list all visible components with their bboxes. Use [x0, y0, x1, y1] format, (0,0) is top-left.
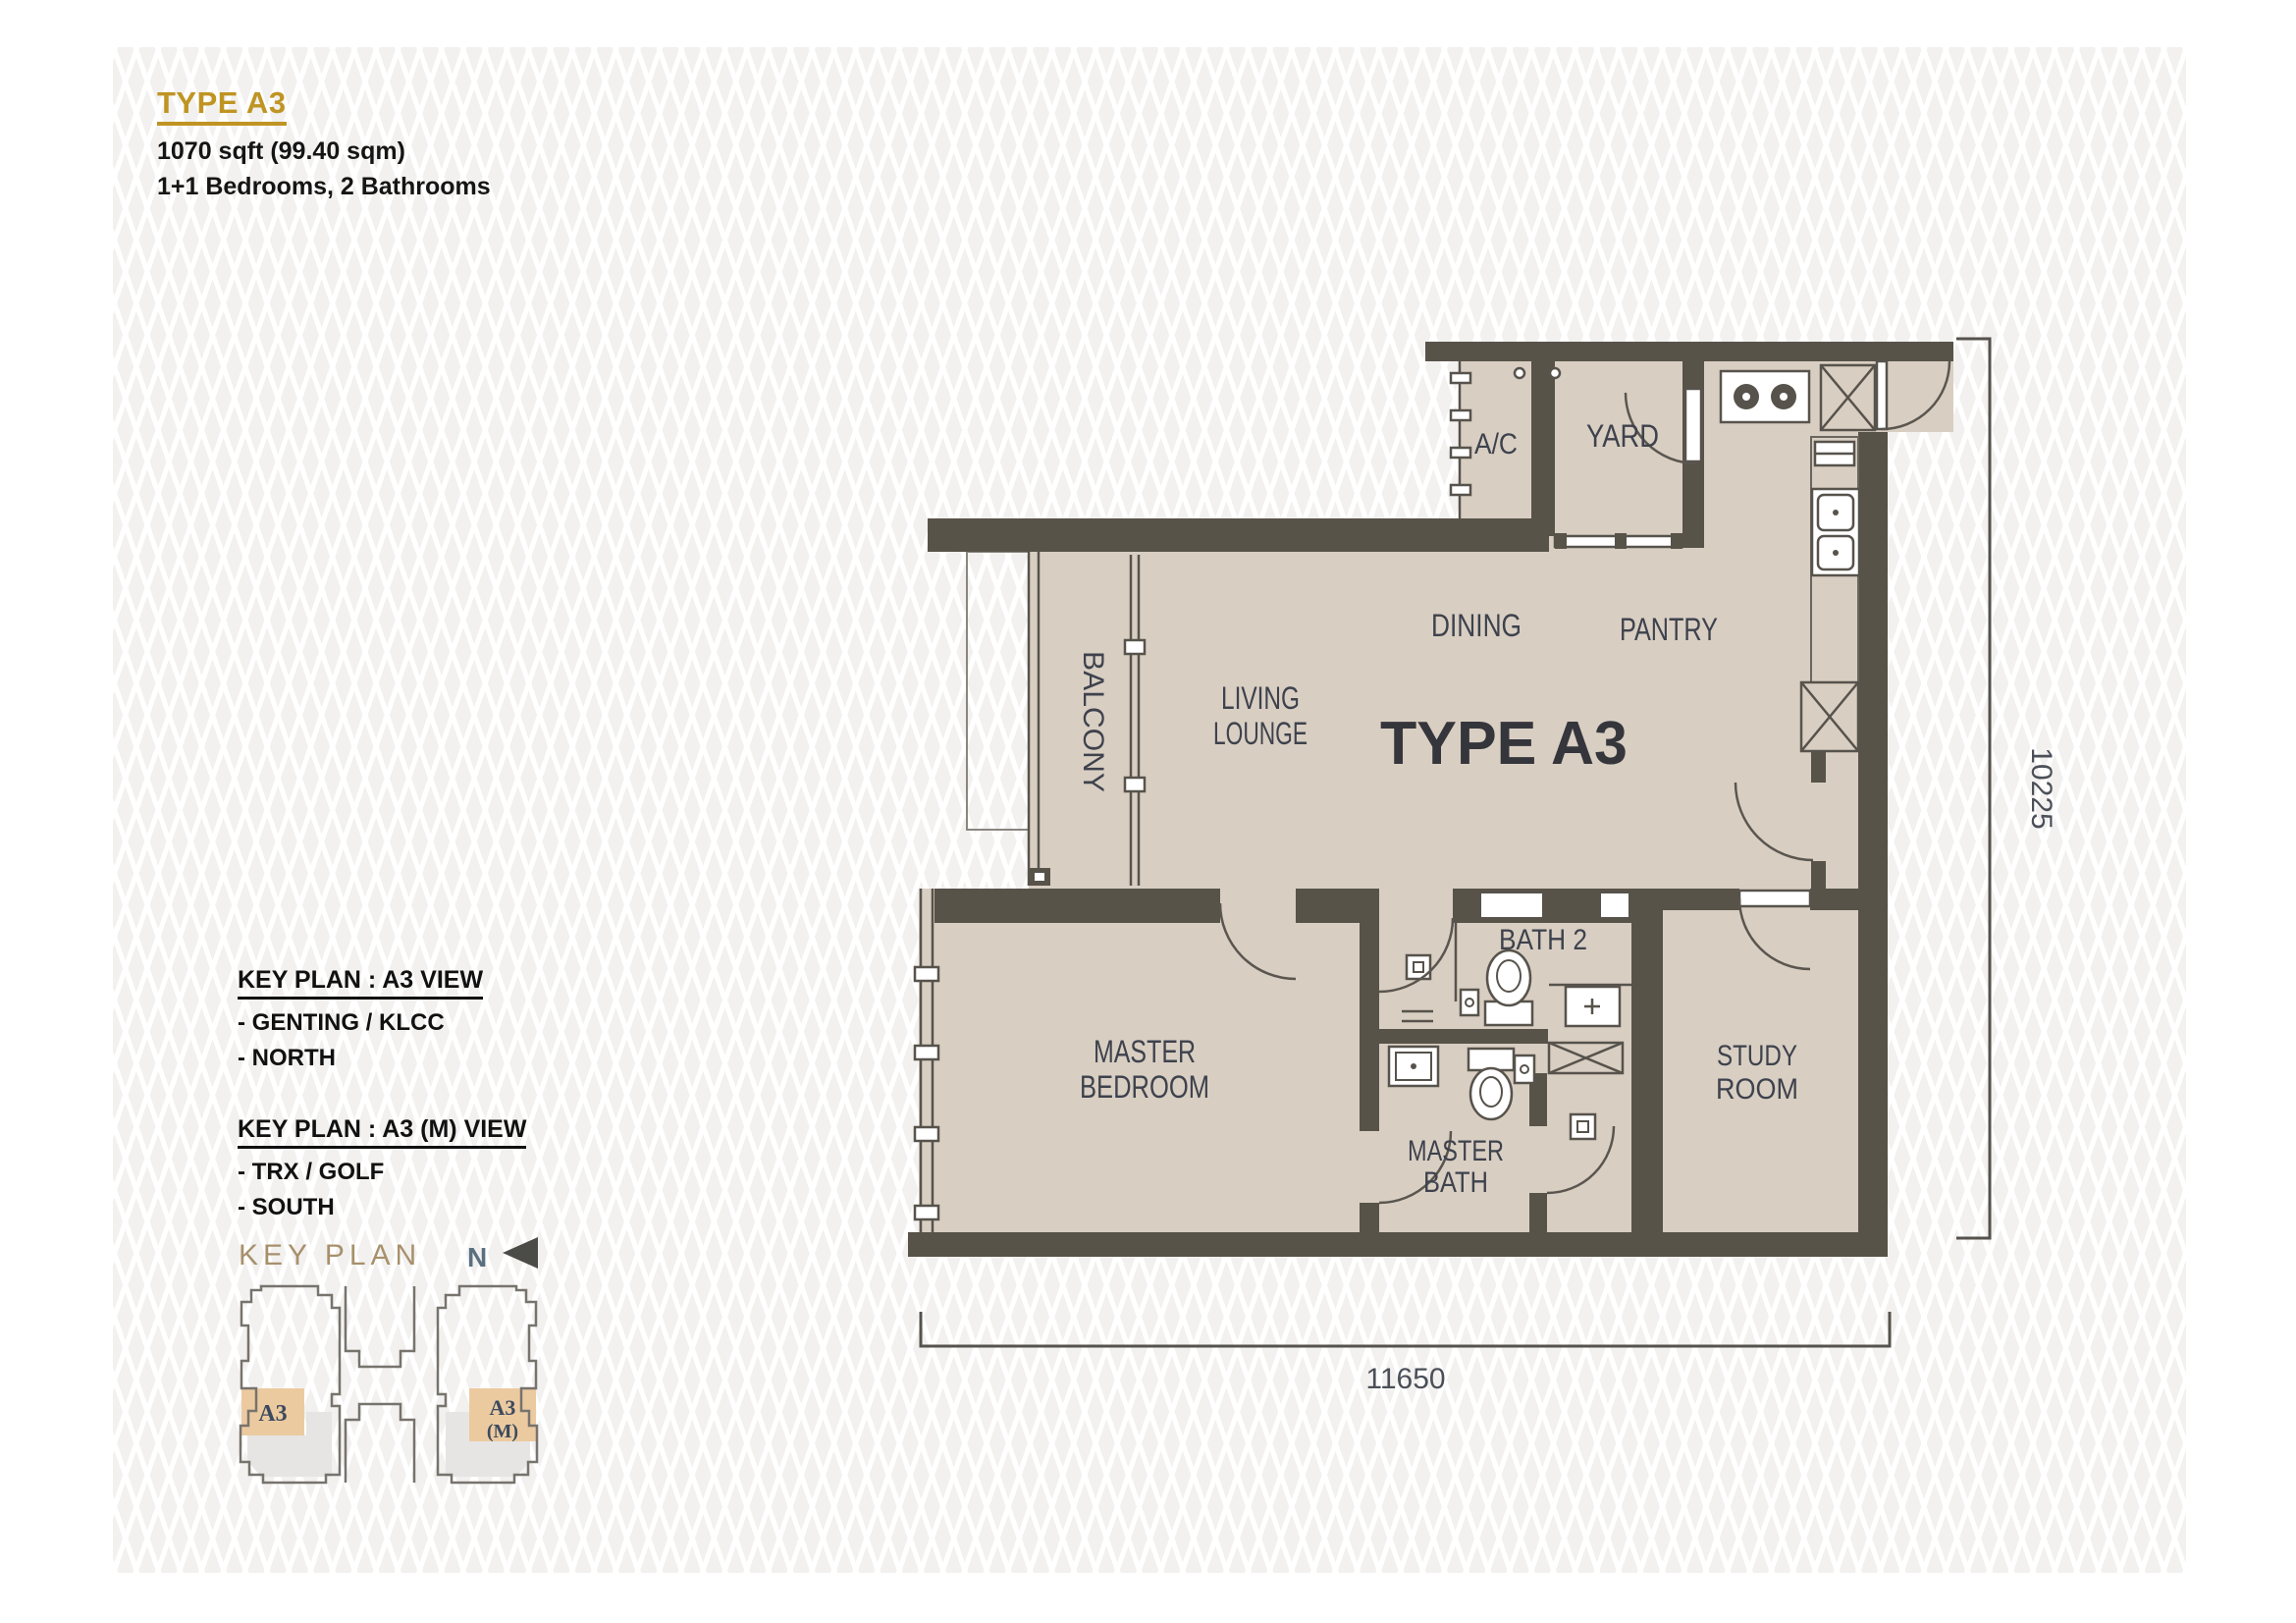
void-notch [967, 552, 1029, 830]
yard-railing [1555, 533, 1682, 549]
key-plan-diagram: KEY PLAN N A3 A3 (M) [239, 1237, 538, 1483]
room-label-pantry: PANTRY [1620, 612, 1718, 647]
vent-window [1600, 893, 1629, 918]
room-label-study-1: STUDY [1717, 1040, 1797, 1072]
room-label-study-2: ROOM [1716, 1073, 1798, 1106]
vent-window [1480, 893, 1543, 918]
room-label-bath2: BATH 2 [1499, 924, 1587, 956]
dimension-height: 10225 [2025, 747, 2057, 829]
keyplan-core-bottom [346, 1404, 414, 1483]
floor-plan-page: TYPE A3 1070 sqft (99.40 sqm) 1+1 Bedroo… [0, 0, 2296, 1623]
plan-type-label: TYPE A3 [1380, 710, 1628, 778]
room-label-living-2: LOUNGE [1213, 716, 1308, 751]
keyplan-label-a3: A3 [258, 1401, 287, 1427]
keyplan-label-a3m-2: (M) [487, 1421, 518, 1442]
stove [1721, 371, 1809, 422]
service-shaft [1549, 1043, 1623, 1073]
service-shaft [1801, 682, 1858, 751]
room-label-master-2: BEDROOM [1080, 1069, 1209, 1105]
room-label-dining: DINING [1431, 608, 1522, 643]
wc-drain [1571, 1114, 1595, 1139]
keyplan-label-a3m-1: A3 [490, 1395, 516, 1420]
unit-floor-plan: A/C YARD DINING PANTRY LIVING LOUNGE BAL… [908, 339, 2057, 1395]
room-label-mbath-1: MASTER [1408, 1135, 1504, 1167]
room-label-living-1: LIVING [1221, 680, 1300, 716]
north-arrow-icon [503, 1237, 538, 1269]
room-label-mbath-2: BATH [1423, 1166, 1488, 1199]
north-label: N [467, 1242, 487, 1272]
service-shaft [1821, 365, 1875, 430]
room-label-master-1: MASTER [1094, 1034, 1196, 1069]
floor-plan-drawing: A/C YARD DINING PANTRY LIVING LOUNGE BAL… [0, 0, 2296, 1623]
kitchen-sink [1812, 489, 1859, 575]
room-label-ac: A/C [1474, 428, 1518, 460]
dimension-width: 11650 [1365, 1363, 1445, 1395]
room-label-yard: YARD [1586, 418, 1659, 454]
key-plan-title: KEY PLAN [239, 1239, 421, 1271]
keyplan-core-top [346, 1286, 414, 1367]
room-label-balcony: BALCONY [1077, 651, 1109, 792]
